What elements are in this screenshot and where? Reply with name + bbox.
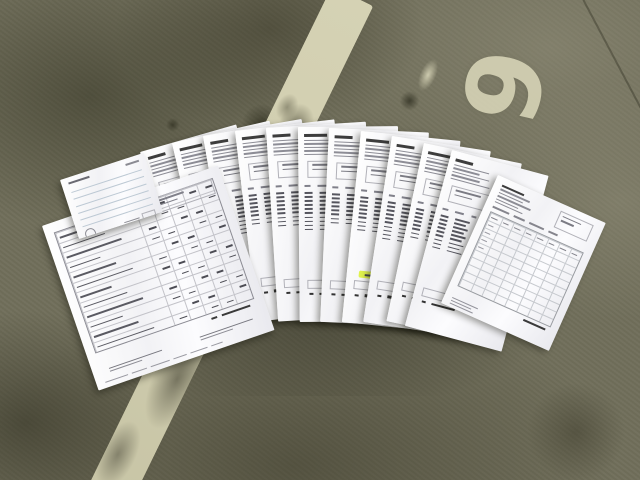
print-line (334, 141, 362, 144)
print-line (191, 245, 198, 249)
print-line (210, 249, 217, 253)
print-line (502, 222, 509, 226)
print-line (387, 205, 395, 208)
print-line (433, 242, 441, 246)
print-line (187, 235, 194, 239)
print-line (366, 139, 389, 144)
print-line (304, 185, 310, 187)
print-line (277, 200, 285, 202)
print-line (196, 210, 203, 214)
print-line (263, 291, 267, 294)
print-line (359, 204, 367, 206)
print-line (276, 192, 284, 194)
print-line (178, 260, 185, 264)
print-line (180, 215, 187, 219)
print-line (332, 201, 340, 203)
print-line (548, 242, 555, 246)
print-line (412, 224, 420, 227)
print-line (497, 195, 530, 211)
print-line (455, 211, 464, 215)
print-line (377, 294, 381, 297)
print-line (304, 192, 312, 194)
print-line (525, 232, 532, 236)
print-line (277, 208, 285, 210)
print-line (276, 196, 284, 198)
print-line (276, 185, 282, 187)
print-line (229, 254, 236, 258)
print-line (354, 294, 358, 297)
print-line (220, 279, 227, 283)
print-line (304, 200, 312, 202)
print-line (396, 144, 414, 149)
print-line (173, 354, 187, 360)
print-line (401, 295, 405, 298)
print-line (192, 300, 199, 304)
print-line (168, 230, 175, 234)
print-line (358, 213, 366, 215)
print-line (304, 208, 312, 210)
print-line (211, 305, 218, 309)
print-line (304, 204, 312, 206)
print-line (152, 236, 159, 240)
print-line (215, 214, 222, 218)
print-line (488, 224, 494, 227)
print-line (199, 220, 206, 224)
print-line (411, 228, 419, 231)
print-line (304, 225, 312, 227)
print-line (250, 214, 258, 217)
print-line (332, 197, 340, 199)
print-line (278, 217, 286, 219)
print-line (359, 200, 367, 202)
print-line (438, 222, 446, 226)
print-line (416, 208, 424, 211)
photo-scene: 6 (0, 0, 640, 480)
print-line (571, 252, 578, 256)
print-line (332, 193, 340, 195)
print-line (478, 246, 484, 249)
print-line (471, 215, 476, 218)
print-line (225, 244, 232, 248)
print-line (304, 216, 312, 218)
print-line (481, 238, 487, 241)
floor-bay-number: 6 (430, 12, 575, 160)
print-line (413, 220, 421, 223)
print-line (182, 270, 189, 274)
print-line (250, 210, 258, 213)
print-line (548, 231, 558, 236)
print-line (417, 201, 423, 204)
print-line (331, 210, 339, 212)
print-line (211, 316, 217, 320)
print-line (435, 234, 443, 238)
print-line (386, 213, 394, 216)
print-line (402, 196, 411, 199)
print-line (261, 185, 270, 188)
print-line (232, 188, 241, 191)
print-line (357, 221, 365, 223)
print-line (163, 266, 170, 270)
print-line (249, 198, 257, 201)
print-line (189, 290, 196, 294)
print-line (384, 225, 392, 228)
print-line (304, 221, 312, 223)
print-line (383, 234, 391, 237)
print-line (132, 368, 147, 374)
print-line (227, 299, 234, 303)
print-line (309, 293, 313, 295)
print-line (180, 315, 187, 319)
print-line (357, 225, 365, 227)
print-line (249, 202, 257, 205)
print-line (247, 187, 253, 189)
print-line (169, 286, 176, 290)
print-line (385, 217, 393, 220)
print-line (491, 217, 498, 221)
print-line (239, 284, 246, 288)
print-line (434, 238, 442, 242)
print-line (206, 240, 213, 244)
print-line (151, 360, 170, 367)
print-line (331, 205, 339, 207)
print-line (304, 196, 312, 198)
print-line (173, 295, 180, 299)
print-line (272, 133, 290, 137)
print-line (485, 231, 491, 234)
print-line (513, 215, 525, 221)
print-line (249, 206, 257, 209)
print-line (440, 218, 448, 222)
print-line (331, 218, 339, 220)
print-line (211, 342, 223, 347)
print-line (361, 189, 367, 191)
print-line (437, 226, 445, 230)
print-line (289, 184, 298, 186)
print-line (277, 212, 285, 214)
print-line (422, 300, 426, 303)
print-line (332, 186, 338, 188)
print-line (385, 221, 393, 224)
print-line (286, 292, 290, 294)
print-line (149, 226, 156, 230)
print-line (201, 275, 208, 279)
print-line (197, 265, 204, 269)
floor-crack (582, 0, 640, 120)
print-line (335, 135, 353, 138)
print-line (159, 256, 166, 260)
print-line (172, 240, 179, 244)
print-line (358, 217, 366, 219)
print-line (414, 216, 422, 219)
print-line (331, 214, 339, 216)
print-line (248, 194, 256, 197)
print-line (537, 237, 544, 241)
print-line (210, 139, 228, 145)
print-line (389, 194, 395, 196)
print-line (331, 293, 335, 295)
print-line (359, 208, 367, 210)
print-line (236, 274, 243, 278)
print-line (411, 232, 419, 235)
paint-fleck (414, 56, 442, 94)
print-line (217, 269, 224, 273)
print-line (190, 347, 207, 354)
print-line (386, 209, 394, 212)
print-line (251, 218, 259, 221)
print-line (278, 221, 286, 223)
print-line (436, 230, 444, 234)
print-line (442, 208, 448, 211)
print-line (383, 229, 391, 232)
print-line (514, 227, 521, 231)
print-line (560, 247, 567, 251)
print-line (388, 201, 396, 204)
print-line (346, 187, 355, 189)
print-line (304, 134, 327, 137)
print-line (277, 204, 285, 206)
print-line (441, 214, 449, 218)
print-line (360, 196, 368, 198)
print-line (317, 185, 326, 187)
print-line (415, 212, 423, 215)
print-line (241, 135, 264, 140)
print-line (304, 212, 312, 214)
print-line (219, 224, 226, 228)
print-line (208, 295, 215, 299)
print-line (374, 191, 383, 193)
